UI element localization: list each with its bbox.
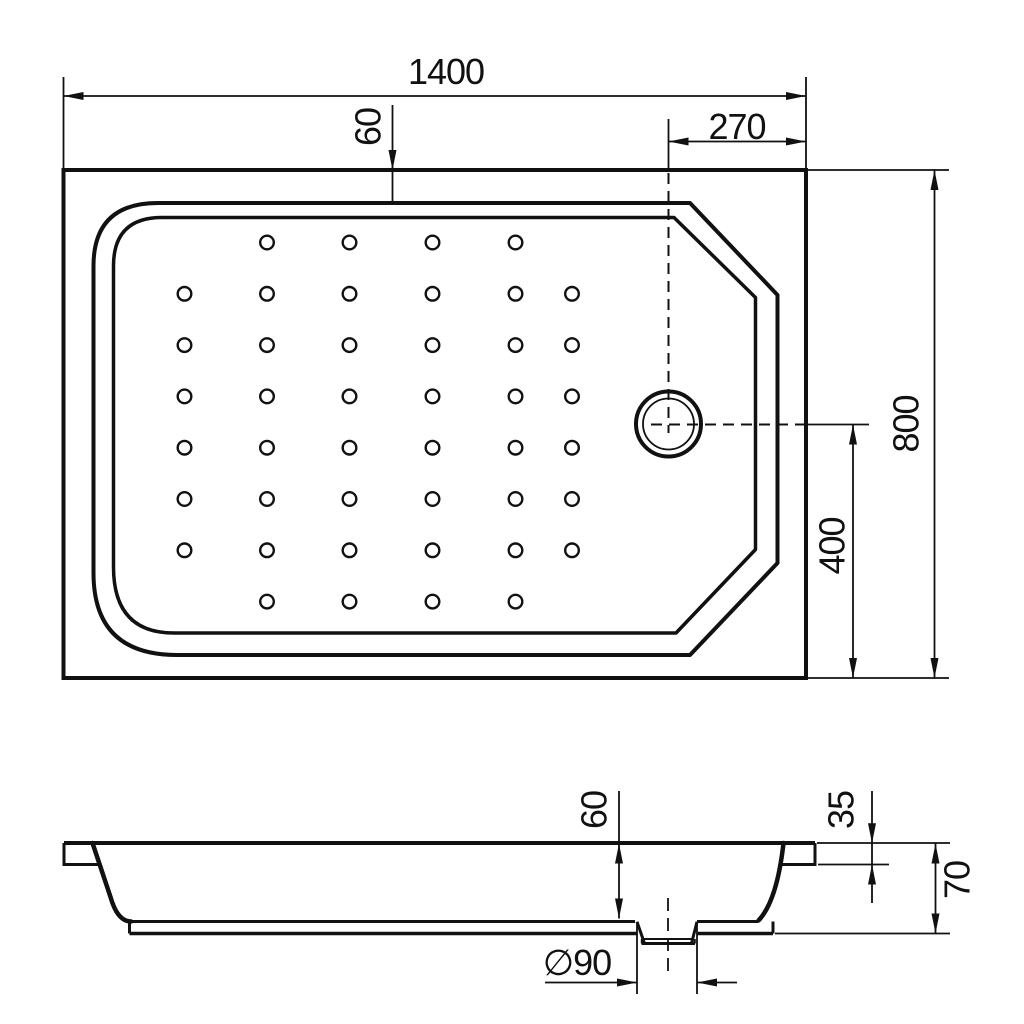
arrowhead <box>868 865 876 885</box>
anti-slip-dot <box>343 390 357 404</box>
anti-slip-dot <box>426 390 440 404</box>
dim-basin-top-offset: 60 <box>348 105 397 202</box>
arrowhead <box>786 138 806 146</box>
anti-slip-dot <box>260 287 274 301</box>
arrowhead <box>697 979 717 987</box>
anti-slip-dot <box>565 441 579 455</box>
profile-left-wall <box>93 843 132 922</box>
arrowhead <box>617 979 637 987</box>
dim-rim-height: 35 <box>818 791 889 903</box>
anti-slip-dot <box>509 492 523 506</box>
technical-drawing-canvas: 1400 60 270 800 <box>0 0 1024 1024</box>
anti-slip-dot <box>565 338 579 352</box>
dim-label-drain-diameter: ∅90 <box>543 942 611 983</box>
dim-basin-depth: 60 <box>574 791 624 919</box>
dim-label-rim-height: 35 <box>821 791 862 829</box>
anti-slip-dot <box>260 390 274 404</box>
anti-slip-dot <box>260 492 274 506</box>
arrowhead <box>615 844 623 864</box>
dim-drain-to-bottom-edge: 400 <box>806 425 869 679</box>
anti-slip-dot <box>565 390 579 404</box>
anti-slip-dot <box>426 492 440 506</box>
dim-label-drain-right: 270 <box>708 106 765 147</box>
anti-slip-dot <box>260 544 274 558</box>
anti-slip-dot <box>509 390 523 404</box>
arrowhead <box>786 92 806 100</box>
anti-slip-dot <box>343 544 357 558</box>
shower-tray-drawing: 1400 60 270 800 <box>0 0 1024 1024</box>
arrowhead <box>849 425 857 445</box>
anti-slip-dot <box>509 544 523 558</box>
anti-slip-dot <box>178 492 192 506</box>
anti-slip-dot <box>343 595 357 609</box>
basin-outer-outline <box>94 203 778 655</box>
anti-slip-dot <box>565 544 579 558</box>
dim-total-height: 70 <box>775 843 978 934</box>
anti-slip-dot <box>565 492 579 506</box>
dim-label-total-height: 70 <box>937 861 978 899</box>
anti-slip-dot <box>178 441 192 455</box>
anti-slip-dot <box>509 595 523 609</box>
arrowhead <box>931 658 939 678</box>
profile-right-lip <box>782 843 815 865</box>
drain-plan <box>636 173 806 457</box>
anti-slip-dot <box>426 338 440 352</box>
arrowhead <box>849 658 857 678</box>
anti-slip-dot <box>178 287 192 301</box>
anti-slip-dot <box>260 595 274 609</box>
arrowhead <box>931 170 939 190</box>
anti-slip-dot <box>343 287 357 301</box>
drain-inner-circle <box>643 399 694 450</box>
arrowhead <box>932 844 940 864</box>
dim-label-overall-depth: 800 <box>886 395 927 452</box>
anti-slip-dot <box>343 492 357 506</box>
anti-slip-dot <box>260 338 274 352</box>
anti-slip-dot <box>260 236 274 250</box>
anti-slip-dot <box>509 287 523 301</box>
arrowhead <box>868 823 876 843</box>
anti-slip-dot <box>509 236 523 250</box>
arrowhead <box>615 899 623 919</box>
dim-label-basin-top-offset: 60 <box>348 108 389 146</box>
arrowhead <box>932 914 940 934</box>
profile-right-wall <box>759 843 784 921</box>
top-view: 1400 60 270 800 <box>64 51 950 678</box>
anti-slip-dot <box>426 441 440 455</box>
side-view: 60 35 70 ∅90 <box>64 791 978 994</box>
arrowhead <box>64 92 84 100</box>
dim-label-drain-bottom: 400 <box>812 517 853 574</box>
drain-pocket-section <box>637 898 697 977</box>
anti-slip-dot <box>343 338 357 352</box>
anti-slip-dot <box>178 390 192 404</box>
anti-slip-dot <box>343 236 357 250</box>
arrowhead <box>669 138 689 146</box>
anti-slip-dot <box>565 287 579 301</box>
dim-overall-width: 1400 <box>64 51 807 168</box>
anti-slip-dot <box>426 287 440 301</box>
dim-label-overall-width: 1400 <box>408 51 484 92</box>
anti-slip-dot-grid <box>178 236 579 609</box>
anti-slip-dot <box>426 595 440 609</box>
anti-slip-dot <box>260 441 274 455</box>
arrowhead <box>389 150 397 170</box>
anti-slip-dot <box>509 441 523 455</box>
dim-drain-to-right-edge: 270 <box>669 106 807 171</box>
anti-slip-dot <box>426 236 440 250</box>
anti-slip-dot <box>178 338 192 352</box>
anti-slip-dot <box>509 338 523 352</box>
dim-label-basin-depth: 60 <box>574 791 615 829</box>
pocket-left-wall <box>637 922 645 944</box>
anti-slip-dot <box>178 544 192 558</box>
anti-slip-dot <box>343 441 357 455</box>
anti-slip-dot <box>426 544 440 558</box>
